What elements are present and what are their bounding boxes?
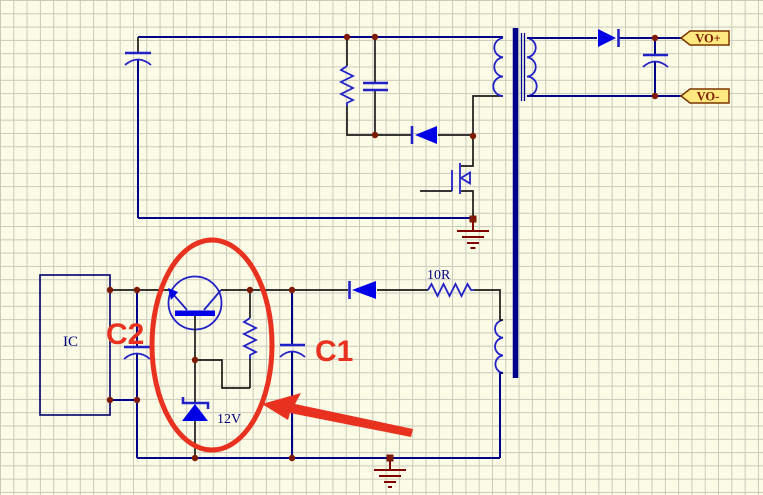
zener-voltage-label: 12V — [217, 412, 241, 427]
red-arrow-annotation — [262, 393, 413, 437]
output-diode — [598, 29, 619, 47]
red-ellipse-annotation — [152, 240, 272, 450]
snubber-wires — [347, 37, 473, 135]
port-vo-minus: VO- — [681, 89, 729, 104]
transformer-secondary-winding — [527, 38, 537, 96]
transistor — [168, 277, 222, 361]
transformer-core — [516, 28, 525, 378]
snubber-diode — [412, 126, 437, 144]
ic-block: IC — [40, 275, 110, 415]
ground-symbol-primary — [457, 216, 489, 249]
transformer — [493, 28, 536, 378]
series-diode — [350, 281, 377, 299]
resistor-10R: 10R — [427, 268, 474, 296]
port-vo-plus: VO+ — [681, 31, 729, 46]
schematic-canvas: VO+ VO- IC — [0, 0, 763, 495]
control-loop-wires — [110, 290, 503, 458]
snubber-resistor — [341, 66, 353, 106]
port-vo-plus-label: VO+ — [695, 32, 721, 46]
annotation-c2-label: C2 — [106, 318, 144, 351]
transformer-primary-winding — [493, 38, 503, 96]
ground-symbol-secondary — [374, 455, 406, 488]
ic-label: IC — [63, 334, 78, 350]
emitter-resistor — [195, 290, 256, 388]
schematic-drawing: VO+ VO- IC — [0, 0, 763, 495]
port-vo-minus-label: VO- — [697, 90, 720, 104]
secondary-wires — [527, 38, 681, 96]
resistor-10R-label: 10R — [427, 268, 451, 283]
annotation-c1-label: C1 — [315, 335, 353, 368]
jog-wire — [195, 360, 250, 388]
mosfet — [420, 163, 473, 219]
snubber-capacitor — [363, 83, 388, 90]
transformer-aux-winding — [495, 320, 503, 373]
